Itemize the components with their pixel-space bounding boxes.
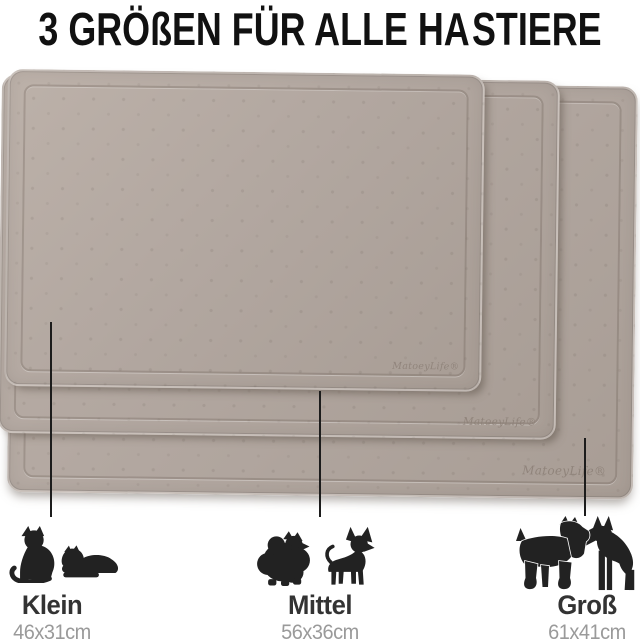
legend-mittel: Mittel 56x36cm — [260, 592, 380, 643]
page-title: 3 GRÖßEN FÜR ALLE HA STIERE — [70, 0, 569, 58]
mat-klein: MatoeyLife® — [4, 69, 485, 392]
brand-logo-gross: MatoeyLife® — [522, 463, 606, 478]
title-text-before: 3 GRÖßEN FÜR ALLE HA — [38, 2, 469, 56]
mat-klein-groove — [20, 84, 468, 376]
dog-chihuahua-icon — [313, 526, 378, 586]
product-size-infographic: 3 GRÖßEN FÜR ALLE HA STIERE MatoeyLife® … — [0, 0, 640, 643]
brand-logo-klein: MatoeyLife® — [392, 361, 459, 373]
brand-logo-mittel: MatoeyLife® — [463, 416, 537, 429]
leader-line-klein — [50, 322, 52, 517]
title-text-after: STIERE — [472, 2, 602, 56]
legend-gross-label: Groß — [530, 592, 640, 619]
legend-klein-size: 46x31cm — [4, 622, 101, 643]
legend-gross-size: 61x41cm — [530, 622, 640, 643]
cat-lying-icon — [58, 542, 124, 581]
legend-gross: Groß 61x41cm — [527, 592, 640, 643]
legend-klein: Klein 46x31cm — [1, 592, 103, 643]
cat-sitting-icon — [8, 525, 62, 583]
dog-pomeranian-icon — [255, 529, 318, 586]
leader-line-gross — [584, 438, 586, 516]
legend-klein-label: Klein — [4, 592, 101, 619]
leader-line-mittel — [319, 391, 321, 517]
dog-schnauzer-icon — [514, 515, 592, 591]
legend-mittel-size: 56x36cm — [263, 622, 377, 643]
legend-mittel-label: Mittel — [263, 592, 377, 619]
